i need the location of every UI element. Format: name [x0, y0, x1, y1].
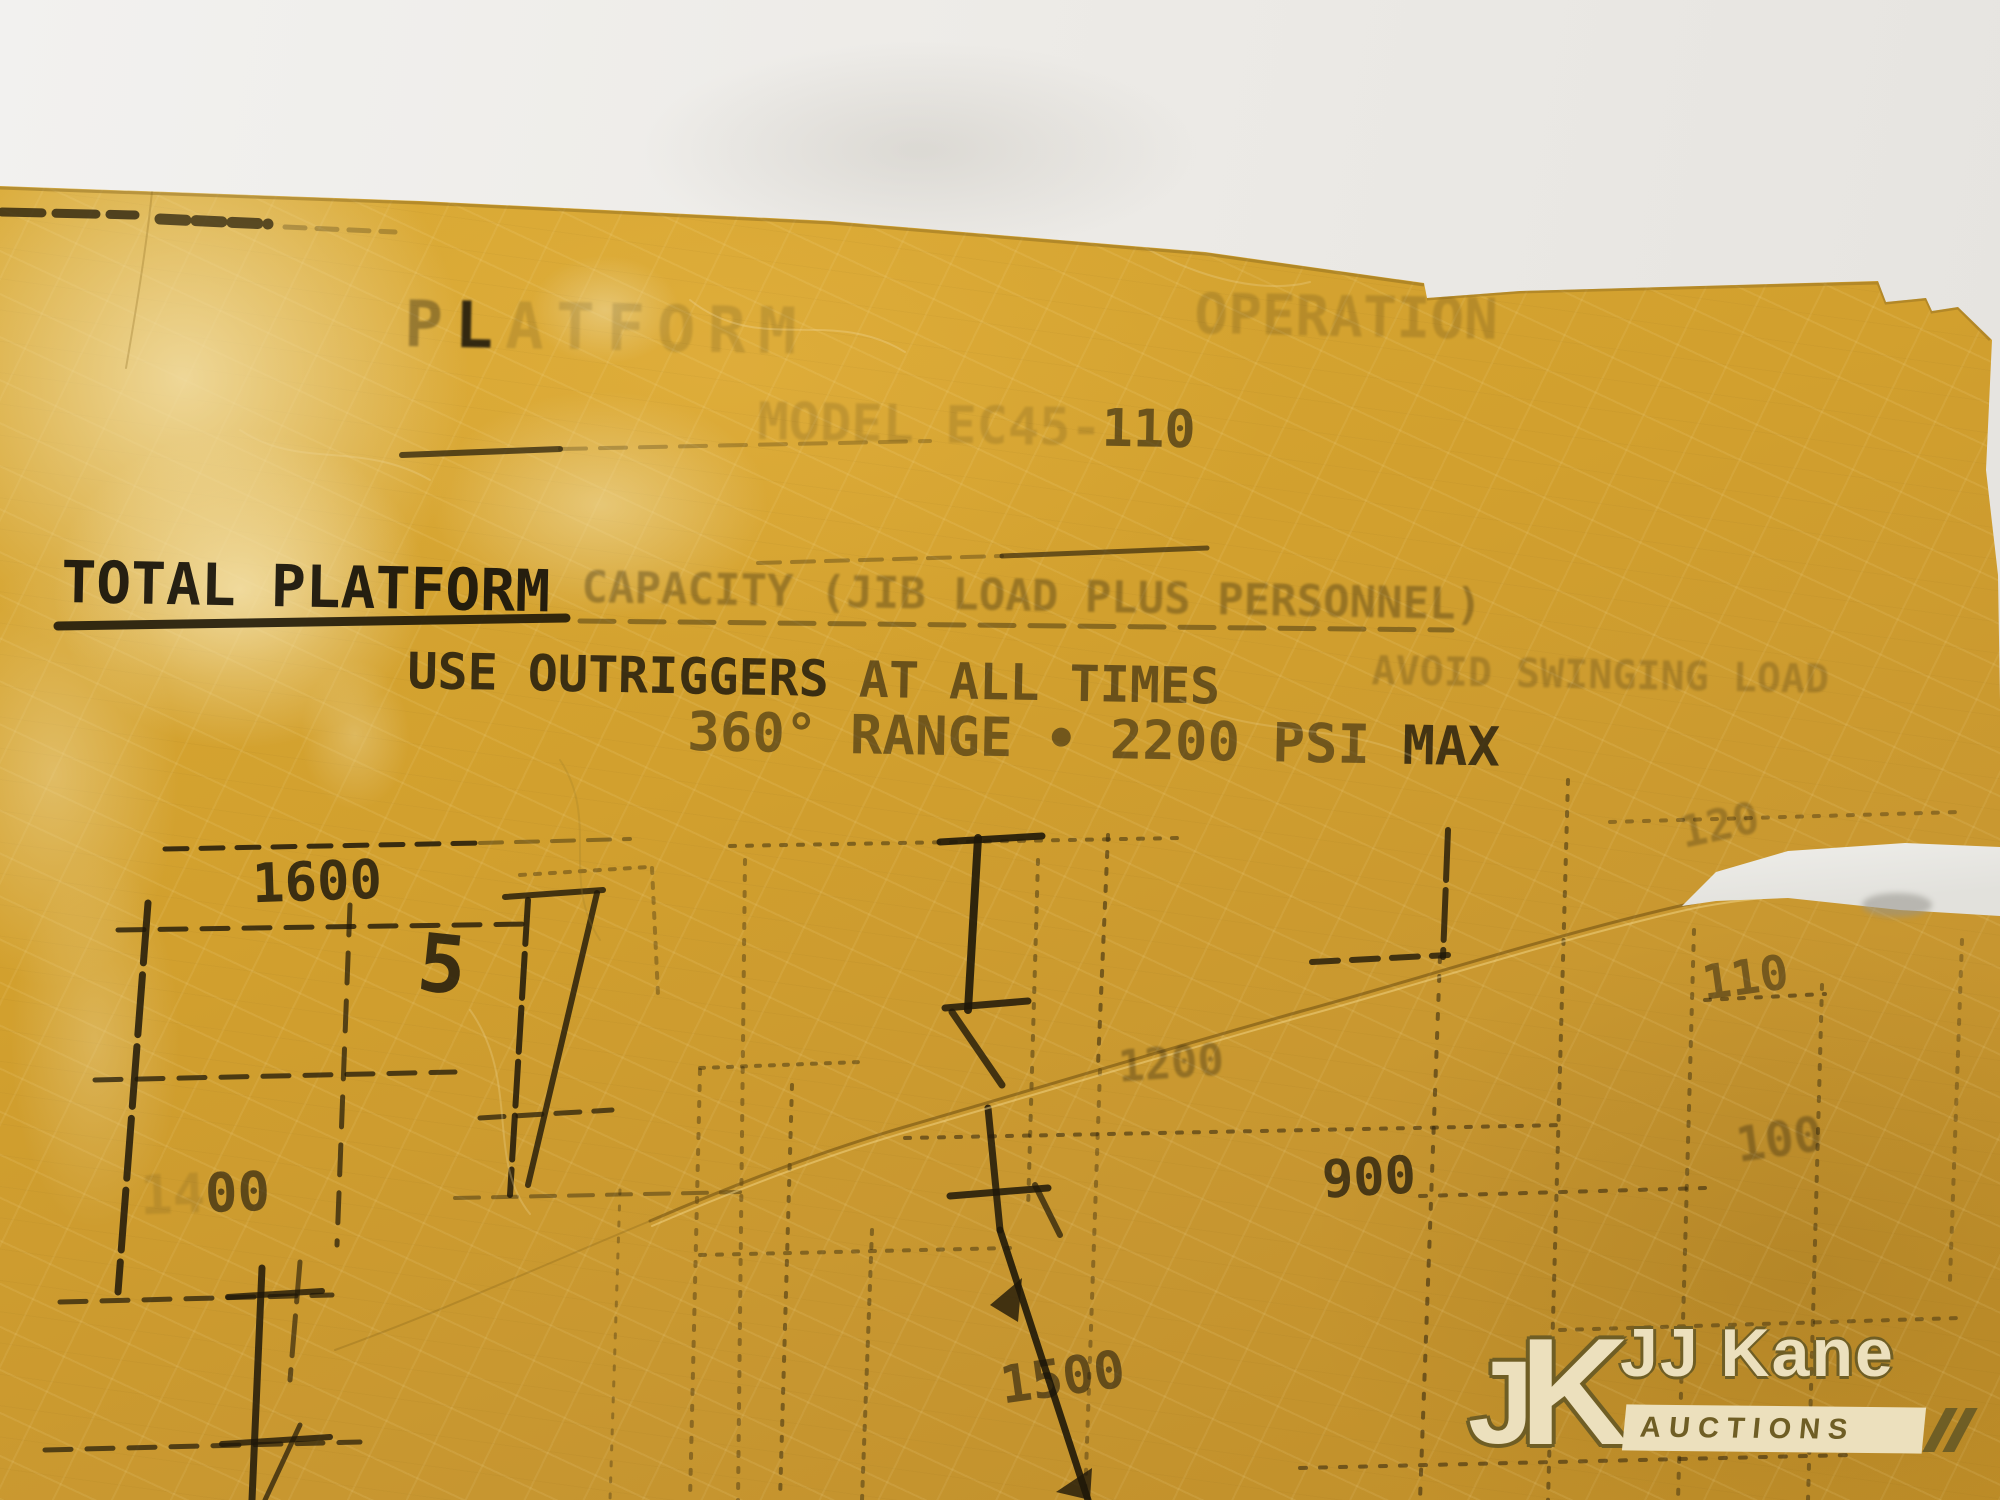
torn-patch-shadow: [1862, 893, 1932, 917]
label-left-00: 1400: [139, 1160, 271, 1228]
label-left-00-worn-prefix: 14: [139, 1162, 206, 1227]
monogram-letter-j: J: [1468, 1344, 1520, 1462]
label-boom-digit: 5: [413, 916, 471, 1014]
label-900: 900: [1320, 1146, 1417, 1211]
monogram-letter-k: K: [1520, 1316, 1616, 1468]
label-left-00-visible: 00: [204, 1160, 271, 1225]
label-100: 100: [1733, 1106, 1827, 1174]
label-1600: 1600: [251, 848, 383, 916]
auctions-banner-text: AUCTIONS: [1639, 1411, 1857, 1446]
jj-kane-watermark: JK JJ Kane AUCTIONS: [1468, 1312, 1988, 1492]
watermark-name: JJ Kane: [1620, 1314, 1895, 1392]
auctions-banner: AUCTIONS: [1622, 1404, 1926, 1453]
label-110: 110: [1699, 944, 1793, 1012]
crack-lines: [126, 192, 2000, 1350]
photo-stage: PLATFORM OPERATION MODEL EC45-110 TOTAL …: [0, 0, 2000, 1500]
jk-monogram-logo: JK: [1468, 1316, 1615, 1468]
label-1200: 1200: [1116, 1034, 1225, 1092]
